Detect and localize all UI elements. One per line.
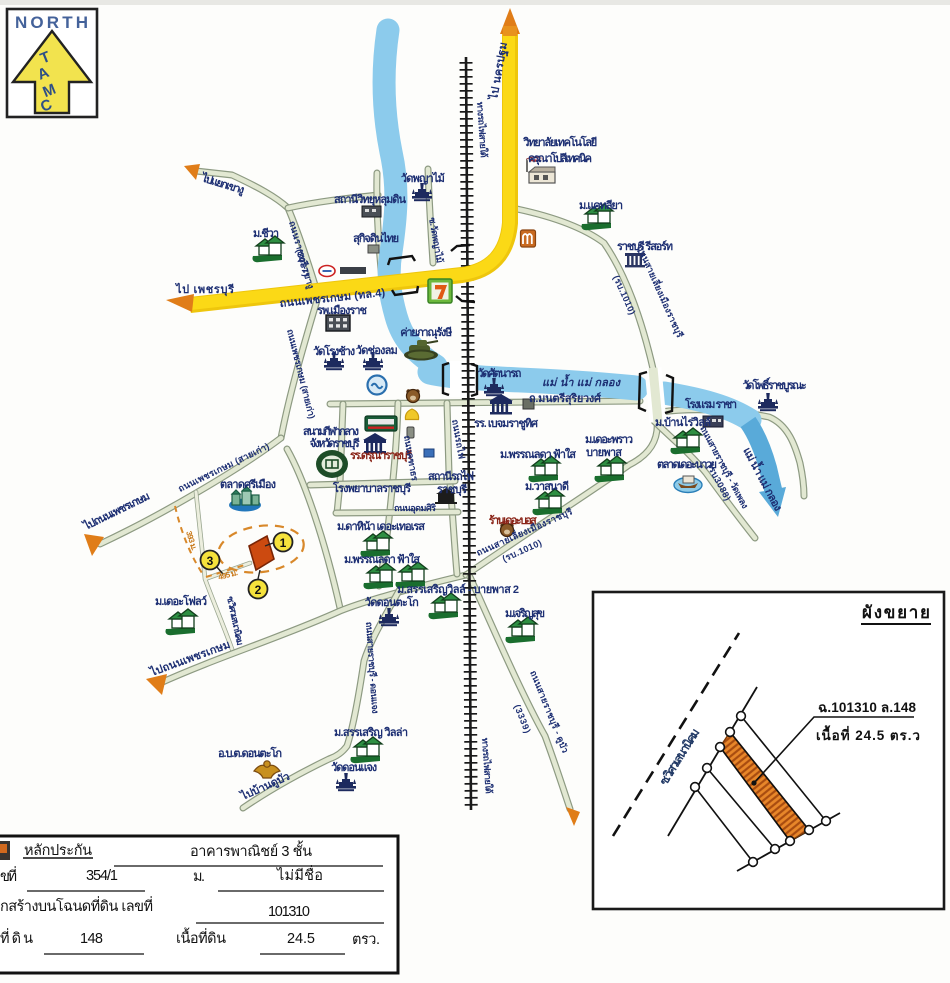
svg-text:ถนนอุดมศิริ: ถนนอุดมศิริ [394, 503, 436, 514]
svg-text:1: 1 [280, 536, 287, 550]
svg-text:ที่ดิน: ที่ดิน [0, 928, 33, 947]
svg-text:วัดโรงช้าง: วัดโรงช้าง [313, 344, 355, 358]
svg-text:ม.: ม. [193, 869, 205, 885]
svg-text:ราชบุรี: ราชบุรี [437, 483, 467, 497]
svg-text:ไป เพชรบุรี: ไป เพชรบุรี [174, 282, 234, 297]
svg-text:วัดพญาไม้: วัดพญาไม้ [401, 171, 445, 185]
svg-text:ถ.มนตรีสุริยวงศ์: ถ.มนตรีสุริยวงศ์ [529, 392, 602, 406]
svg-text:กสร้างบนโฉนดที่ดิน เลขที่: กสร้างบนโฉนดที่ดิน เลขที่ [0, 896, 153, 915]
svg-text:ม.สรรเสริญวิลล์ - บายพาส 2: ม.สรรเสริญวิลล์ - บายพาส 2 [397, 583, 519, 596]
svg-text:ม.ชีวา: ม.ชีวา [253, 227, 279, 240]
svg-text:สุกิจดินไทย: สุกิจดินไทย [353, 231, 399, 246]
svg-text:วัดดอนแจง: วัดดอนแจง [331, 761, 377, 774]
svg-text:วัดโพธิ์ราชบูรณะ: วัดโพธิ์ราชบูรณะ [743, 377, 807, 393]
svg-text:ม.สรรเสริญ วิลล่า: ม.สรรเสริญ วิลล่า [334, 726, 408, 739]
svg-text:2: 2 [255, 583, 262, 597]
svg-text:3: 3 [207, 554, 214, 568]
svg-text:ม.เดอะพราว: ม.เดอะพราว [585, 434, 633, 446]
svg-text:รร.ดรุณาราชบุรี: รร.ดรุณาราชบุรี [350, 449, 412, 463]
svg-text:วัดดอนตะโก: วัดดอนตะโก [365, 595, 419, 609]
svg-text:ไม่มีชื่อ: ไม่มีชื่อ [276, 865, 323, 884]
svg-text:101310: 101310 [268, 904, 310, 920]
svg-text:เนื้อที่ 24.5 ตร.ว: เนื้อที่ 24.5 ตร.ว [816, 725, 920, 743]
svg-text:สนามกีฬากลาง: สนามกีฬากลาง [303, 425, 359, 438]
svg-text:354/1: 354/1 [86, 868, 118, 884]
svg-text:บายพาส: บายพาส [586, 447, 622, 459]
svg-text:ฉ.101310 ล.148: ฉ.101310 ล.148 [818, 700, 916, 715]
svg-text:อ.บ.ต.ดอนตะโก: อ.บ.ต.ดอนตะโก [218, 746, 282, 760]
svg-text:ครุณาโปลีเทคนิค: ครุณาโปลีเทคนิค [528, 151, 592, 166]
svg-text:ม.พรรณลดา ฟ้าใส: ม.พรรณลดา ฟ้าใส [500, 447, 576, 461]
svg-text:ตรว.: ตรว. [352, 932, 380, 948]
svg-text:วัดช่องลม: วัดช่องลม [356, 344, 398, 357]
svg-text:จังหวัดราชบุรี: จังหวัดราชบุรี [310, 437, 360, 451]
svg-text:โรงแรม ราชา: โรงแรม ราชา [684, 397, 737, 411]
svg-text:ม.ดาหิน้า เดอะเทอเรส: ม.ดาหิน้า เดอะเทอเรส [337, 520, 425, 533]
svg-text:ม.เจริญสุข: ม.เจริญสุข [505, 607, 545, 621]
svg-text:ม.วาสนาดี: ม.วาสนาดี [525, 480, 569, 493]
svg-text:รพ.เมืองราช: รพ.เมืองราช [317, 304, 368, 317]
svg-text:ม.แคทลียา: ม.แคทลียา [579, 199, 623, 212]
svg-text:148: 148 [80, 931, 103, 947]
svg-text:ม.เดอะโฟลว์: ม.เดอะโฟลว์ [155, 594, 207, 608]
svg-text:สถานีวิทยุหลุมดิน: สถานีวิทยุหลุมดิน [334, 193, 406, 207]
svg-text:ค่ายภาณุรังษี: ค่ายภาณุรังษี [400, 326, 453, 340]
svg-text:ขที่: ขที่ [0, 866, 17, 885]
svg-text:สถานีรถไฟ: สถานีรถไฟ [428, 469, 474, 483]
svg-text:ม.พรรณลดา ฟ้าใส: ม.พรรณลดา ฟ้าใส [344, 552, 420, 566]
svg-text:24.5: 24.5 [287, 931, 315, 947]
svg-text:หลักประกัน: หลักประกัน [24, 843, 92, 859]
svg-text:วิทยาลัยเทคโนโลยี: วิทยาลัยเทคโนโลยี [522, 135, 597, 149]
svg-text:โรงพยาบาลราชบุรี: โรงพยาบาลราชบุรี [332, 481, 411, 496]
svg-text:ตลาดศรีเมือง: ตลาดศรีเมือง [220, 478, 276, 491]
svg-text:แม่ น้ำ แม่ กลอง: แม่ น้ำ แม่ กลอง [542, 374, 622, 389]
svg-text:รร. เบจมราชูทิศ: รร. เบจมราชูทิศ [474, 417, 539, 431]
svg-text:วัดศัตนารถ: วัดศัตนารถ [477, 367, 521, 380]
